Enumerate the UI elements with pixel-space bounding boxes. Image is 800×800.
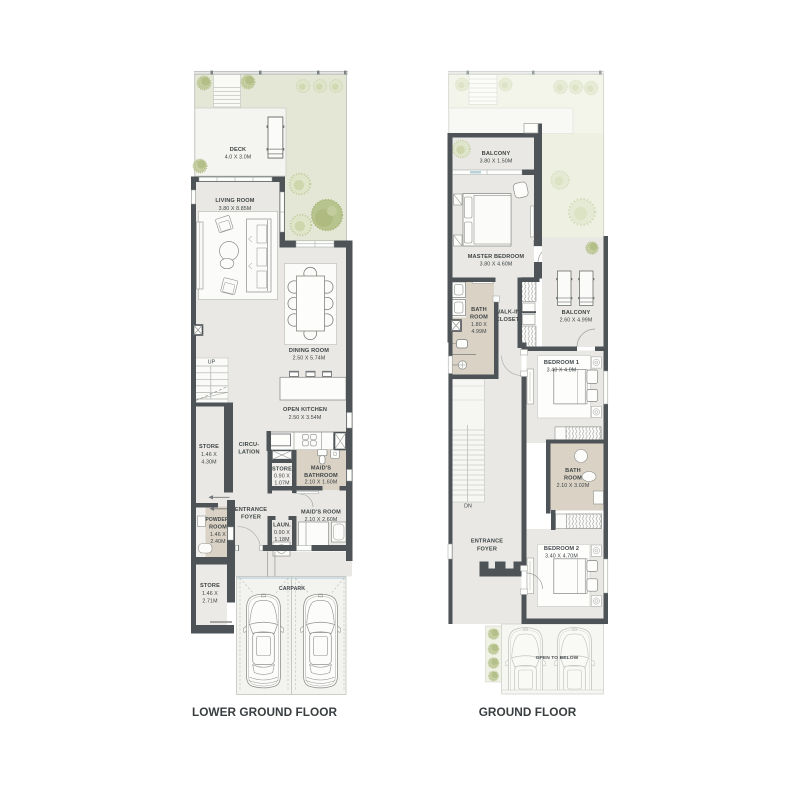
svg-text:3.40 X 4.0M: 3.40 X 4.0M	[547, 368, 577, 374]
svg-text:1.07M: 1.07M	[274, 481, 289, 487]
svg-text:4.0 X 3.0M: 4.0 X 3.0M	[225, 155, 252, 161]
svg-text:STORE: STORE	[199, 444, 219, 450]
svg-text:ROOM: ROOM	[470, 315, 488, 321]
svg-text:FOYER: FOYER	[241, 515, 261, 521]
svg-text:WALK-IN: WALK-IN	[495, 310, 520, 316]
svg-text:GROUND FLOOR: GROUND FLOOR	[479, 705, 577, 719]
svg-text:2.71M: 2.71M	[202, 599, 217, 605]
svg-text:DN: DN	[464, 504, 472, 510]
svg-text:ENTRANCE: ENTRANCE	[235, 507, 267, 513]
svg-text:BATH: BATH	[471, 307, 487, 313]
svg-text:BALCONY: BALCONY	[482, 151, 511, 157]
svg-text:BATHROOM: BATHROOM	[304, 473, 338, 479]
svg-text:3.80 X 1.50M: 3.80 X 1.50M	[480, 159, 513, 165]
svg-text:STORE: STORE	[200, 583, 220, 589]
svg-text:2.60 X 4.99M: 2.60 X 4.99M	[560, 318, 593, 324]
svg-text:0.90 X: 0.90 X	[274, 474, 290, 480]
svg-text:ROOM: ROOM	[564, 476, 582, 482]
svg-text:2.10 X 1.60M: 2.10 X 1.60M	[305, 480, 338, 486]
svg-text:POWDER: POWDER	[205, 517, 228, 523]
svg-text:LATION: LATION	[238, 450, 259, 456]
svg-text:4.30M: 4.30M	[201, 460, 216, 466]
svg-text:3.80 X 8.85M: 3.80 X 8.85M	[219, 206, 252, 212]
svg-text:2.50 X 5.74M: 2.50 X 5.74M	[293, 356, 326, 362]
svg-text:STORE: STORE	[272, 467, 292, 473]
svg-text:MAID'S: MAID'S	[311, 466, 331, 472]
svg-text:ROOM: ROOM	[209, 525, 227, 531]
svg-text:1.80 X: 1.80 X	[471, 322, 487, 328]
svg-text:3.40 X 4.70M: 3.40 X 4.70M	[545, 554, 578, 560]
svg-text:2.50 X 3.54M: 2.50 X 3.54M	[289, 415, 322, 421]
svg-text:BALCONY: BALCONY	[562, 310, 591, 316]
svg-text:BEDROOM 2: BEDROOM 2	[544, 546, 579, 552]
svg-text:1.18M: 1.18M	[274, 537, 289, 543]
svg-text:1.46 X: 1.46 X	[201, 452, 217, 458]
svg-text:2.10 X 3.02M: 2.10 X 3.02M	[557, 483, 590, 489]
svg-text:DINING ROOM: DINING ROOM	[289, 348, 329, 354]
svg-text:MAID'S ROOM: MAID'S ROOM	[301, 510, 341, 516]
svg-text:3.80 X 4.60M: 3.80 X 4.60M	[480, 262, 513, 268]
svg-text:OPEN TO BELOW: OPEN TO BELOW	[536, 655, 579, 661]
svg-text:BATH: BATH	[565, 468, 581, 474]
svg-text:2.40M: 2.40M	[210, 539, 225, 545]
svg-text:1.46 X: 1.46 X	[202, 591, 218, 597]
svg-text:LIVING ROOM: LIVING ROOM	[215, 198, 254, 204]
svg-text:MASTER BEDROOM: MASTER BEDROOM	[468, 254, 525, 260]
svg-text:BEDROOM 1: BEDROOM 1	[544, 360, 579, 366]
svg-text:OPEN KITCHEN: OPEN KITCHEN	[283, 407, 327, 413]
svg-text:1.46 X: 1.46 X	[210, 532, 226, 538]
svg-text:ENTRANCE: ENTRANCE	[471, 539, 503, 545]
svg-text:LOWER GROUND FLOOR: LOWER GROUND FLOOR	[192, 705, 338, 719]
svg-text:DECK: DECK	[230, 147, 246, 153]
svg-text:CIRCU-: CIRCU-	[239, 442, 259, 448]
svg-text:4.99M: 4.99M	[471, 329, 486, 335]
svg-text:FOYER: FOYER	[477, 547, 497, 553]
svg-text:CARPARK: CARPARK	[279, 586, 305, 592]
svg-text:0.90 X: 0.90 X	[274, 530, 290, 536]
svg-text:CLOSET: CLOSET	[496, 317, 520, 323]
svg-text:UP: UP	[208, 360, 216, 366]
svg-text:LAUN.: LAUN.	[273, 523, 291, 529]
